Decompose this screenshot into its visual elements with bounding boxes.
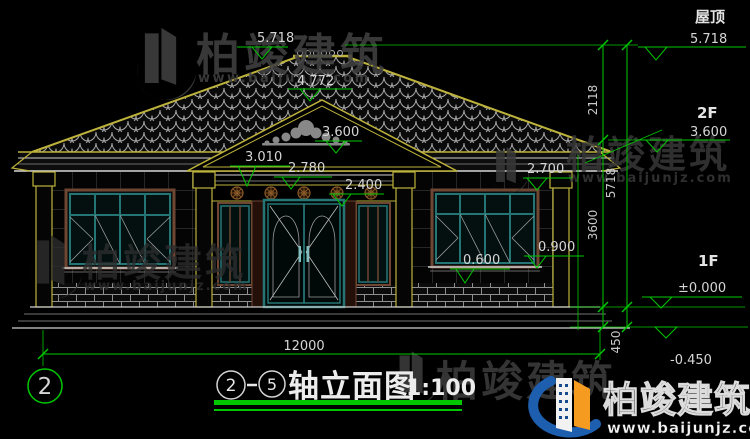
floor2-level: 3.600 xyxy=(690,125,727,140)
watermark-bottom-right-color: 柏竣建筑 www.baijunjz.com xyxy=(533,378,750,437)
ground-level: ±0.000 xyxy=(678,281,726,296)
level-text-2400: 2.400 xyxy=(345,178,382,193)
dim-2118: 2118 xyxy=(586,85,600,116)
title-scale: 1:100 xyxy=(406,376,476,401)
title-block: 2 5 轴立面图 1:100 xyxy=(214,369,476,411)
level-marker-minus450 xyxy=(570,327,748,338)
watermark-url: www.baijunjz.com xyxy=(568,171,733,186)
level-text-5718-top: 5.718 xyxy=(257,31,294,46)
dim-450: 450 xyxy=(609,331,623,354)
right-sidelite xyxy=(356,203,390,285)
entry-door xyxy=(264,200,344,307)
logo-building-white xyxy=(556,378,572,432)
level-text-3010: 3.010 xyxy=(245,150,282,165)
watermark-url: www.baijunjz.com xyxy=(198,71,371,86)
title-axis-to: 5 xyxy=(267,375,277,394)
dim-12000: 12000 xyxy=(283,339,324,354)
floor1-label: 1F xyxy=(698,252,719,270)
level-text-2780: 2.780 xyxy=(288,161,325,176)
level-text-0900: 0.900 xyxy=(538,240,575,255)
plinth-level: -0.450 xyxy=(670,353,712,368)
cad-elevation-screenshot: 柏竣建筑 www.baijunjz.com 柏竣建筑 www.baijunjz.… xyxy=(0,0,750,439)
level-text-0600: 0.600 xyxy=(463,253,500,268)
title-name: 轴立面图 xyxy=(288,369,416,405)
level-marker-1f xyxy=(570,297,745,308)
dim-3600: 3600 xyxy=(586,210,600,241)
roof-label: 屋顶 xyxy=(695,8,725,26)
elevation-drawing-canvas: 柏竣建筑 www.baijunjz.com 柏竣建筑 www.baijunjz.… xyxy=(0,0,750,439)
level-text-4772: 4.772 xyxy=(297,74,334,89)
level-text-2700: 2.700 xyxy=(527,162,564,177)
brand-name-color: 柏竣建筑 xyxy=(603,380,750,421)
title-axis-from: 2 xyxy=(226,376,237,396)
roof-level-right: 5.718 xyxy=(690,32,727,47)
ground-lines xyxy=(12,307,630,328)
floor2-label: 2F xyxy=(697,104,718,122)
level-marker-roof-right xyxy=(345,45,746,60)
grid-axis-number: 2 xyxy=(38,374,53,400)
brand-url-color: www.baijunjz.com xyxy=(607,419,750,437)
door-handle-right xyxy=(307,246,310,262)
door-handle-left xyxy=(299,246,302,262)
watermark-url: www.baijunjz.com xyxy=(84,279,249,294)
dim-5718: 5718 xyxy=(604,168,618,199)
level-text-3600-gable: 3.600 xyxy=(322,125,359,140)
